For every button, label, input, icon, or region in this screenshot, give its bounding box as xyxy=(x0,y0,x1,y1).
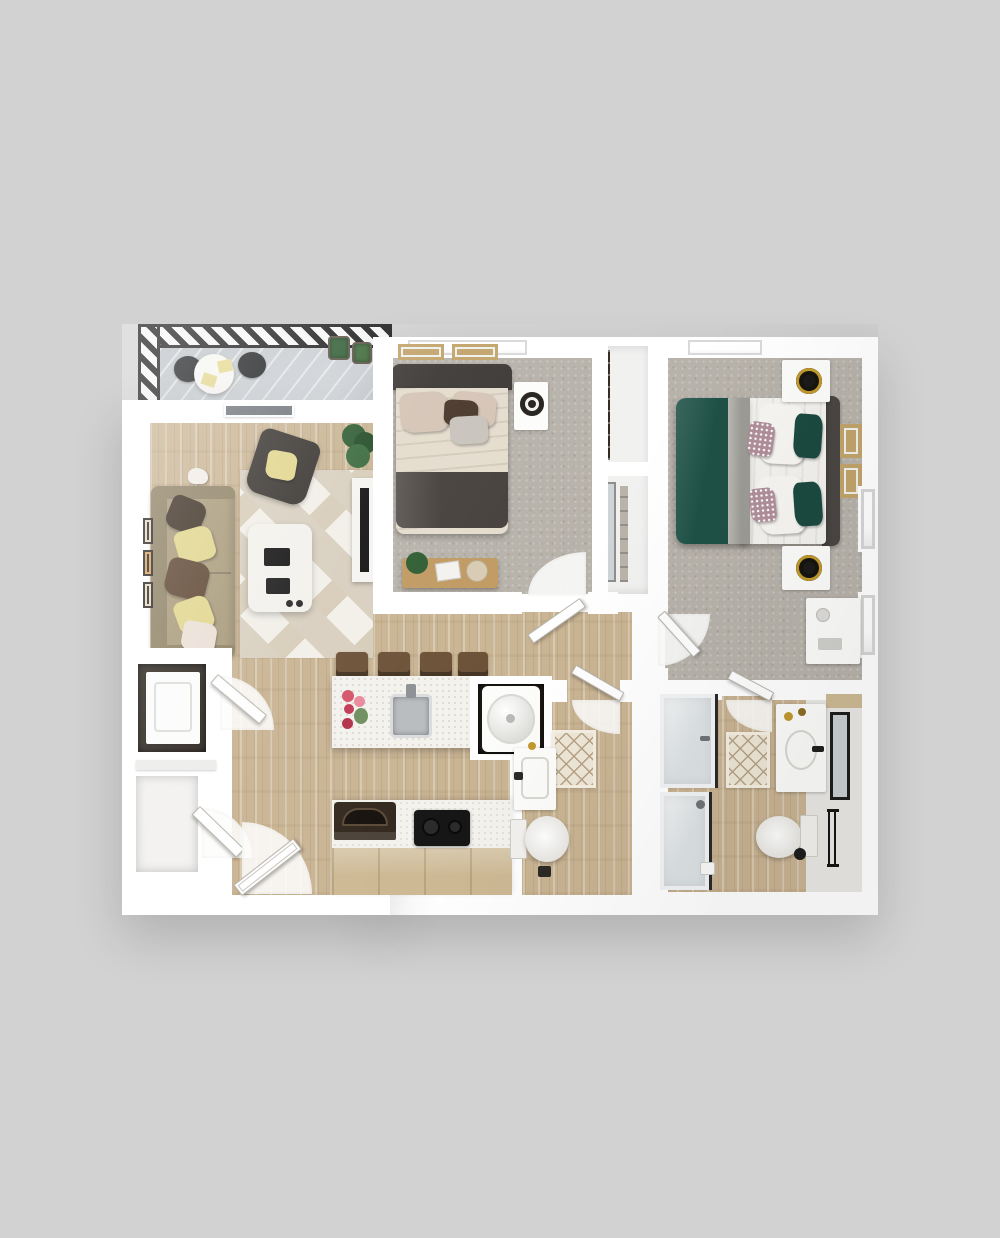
bath-rug-icon xyxy=(726,732,770,788)
sink-icon xyxy=(390,694,432,738)
soap xyxy=(798,708,806,716)
accent-pillow xyxy=(748,487,777,524)
wall xyxy=(588,592,618,614)
potted-plant-icon xyxy=(406,552,428,574)
bar-stool-icon xyxy=(378,652,410,678)
water-heater xyxy=(146,672,200,744)
wall xyxy=(620,680,652,702)
tv-icon xyxy=(360,488,369,572)
remote xyxy=(266,578,290,594)
panel-line xyxy=(154,682,192,732)
tray xyxy=(264,548,290,566)
closet-interior xyxy=(136,776,198,872)
faucet-icon xyxy=(812,746,824,752)
toilet-icon xyxy=(756,814,818,858)
cooktop-icon xyxy=(414,810,470,846)
bloom xyxy=(344,704,354,714)
bar-stool-icon xyxy=(336,652,368,678)
bar-end xyxy=(827,809,839,812)
closet-shelves xyxy=(620,486,628,582)
bar-end xyxy=(827,864,839,867)
wall xyxy=(772,680,878,700)
vanity-shelf xyxy=(826,694,862,708)
sofa-arm xyxy=(151,486,235,499)
wall-frame-icon xyxy=(143,582,153,608)
floor-plan xyxy=(0,0,1000,1238)
desk-icon xyxy=(806,598,860,664)
bar-stool-icon xyxy=(420,652,452,678)
double-bed-icon xyxy=(676,396,840,546)
foot-runner xyxy=(396,472,508,528)
kitchen-island-icon xyxy=(332,676,474,748)
nightstand-icon xyxy=(782,360,830,402)
tissue-box xyxy=(700,862,715,875)
wall xyxy=(373,592,522,614)
bloom xyxy=(342,718,353,729)
balcony-railing xyxy=(138,324,160,404)
lamp-icon xyxy=(796,368,822,394)
wall-frame-icon xyxy=(840,424,862,458)
lamp-icon xyxy=(520,392,544,416)
floor-item xyxy=(538,866,551,877)
flower-vase-icon xyxy=(340,688,374,734)
shower-fixture-icon xyxy=(696,800,705,809)
closet-ledge xyxy=(136,760,216,770)
oven-icon xyxy=(334,802,396,840)
bird-decor xyxy=(188,468,208,484)
coffee-table-icon xyxy=(248,524,312,612)
sink-bowl xyxy=(521,757,549,799)
leaves xyxy=(354,708,368,724)
knob xyxy=(296,600,303,607)
nightstand-icon xyxy=(514,382,548,430)
tray xyxy=(466,560,488,582)
sofa-back xyxy=(151,486,167,658)
bed-pillow xyxy=(792,481,823,527)
bed-pillow xyxy=(449,415,488,445)
shower-icon xyxy=(660,694,718,788)
patio-chair-icon xyxy=(238,352,266,378)
wall-frame-icon xyxy=(143,550,153,576)
vanity-sink-icon xyxy=(514,748,556,810)
bar-stool-icon xyxy=(458,652,488,678)
window-icon xyxy=(685,337,765,358)
faucet-icon xyxy=(514,772,523,780)
toilet-icon xyxy=(510,816,570,862)
bloom xyxy=(354,696,365,707)
wall-frame-icon xyxy=(143,518,153,544)
soap xyxy=(528,742,536,750)
lamp-icon xyxy=(796,555,822,581)
wall xyxy=(373,337,393,612)
accent-pillow xyxy=(746,420,776,457)
desk-item xyxy=(818,638,842,650)
wall xyxy=(592,337,608,594)
planter-icon xyxy=(328,336,350,360)
desk-item xyxy=(816,608,830,622)
flush-button xyxy=(794,848,806,860)
tv-console-icon xyxy=(352,478,374,582)
vanity-sink-icon xyxy=(776,704,826,792)
mirror-icon xyxy=(830,712,850,800)
planter-icon xyxy=(352,342,372,364)
shower-fixture-icon xyxy=(700,736,710,741)
cabinet-face xyxy=(332,848,512,895)
bed-pillow xyxy=(399,390,450,433)
foliage xyxy=(346,444,370,468)
bloom xyxy=(342,690,354,702)
bench-icon xyxy=(402,558,498,588)
knob xyxy=(286,600,293,607)
wall-frame-icon xyxy=(452,344,498,360)
double-bed-icon xyxy=(392,364,512,534)
kitchen-counter xyxy=(332,800,512,895)
toilet-bowl xyxy=(525,816,569,862)
shower-icon xyxy=(660,792,712,890)
faucet-icon xyxy=(406,684,416,698)
burner xyxy=(448,820,462,834)
throw-pillow xyxy=(264,449,298,482)
towel-bar-icon xyxy=(828,812,836,864)
sliding-door-icon xyxy=(224,404,294,417)
bed-pillow xyxy=(792,413,823,459)
balcony xyxy=(138,324,392,404)
nightstand-icon xyxy=(782,546,830,590)
washer-knob xyxy=(506,714,515,723)
headboard xyxy=(392,364,512,390)
burner xyxy=(422,818,440,836)
books xyxy=(435,560,461,581)
throw-blanket xyxy=(728,398,750,544)
oven-glass xyxy=(342,808,388,826)
soap xyxy=(784,712,793,721)
wall xyxy=(648,337,668,614)
bath-rug-icon xyxy=(552,730,596,788)
window-icon xyxy=(858,486,878,552)
wall-frame-icon xyxy=(398,344,444,360)
window-icon xyxy=(858,592,878,658)
